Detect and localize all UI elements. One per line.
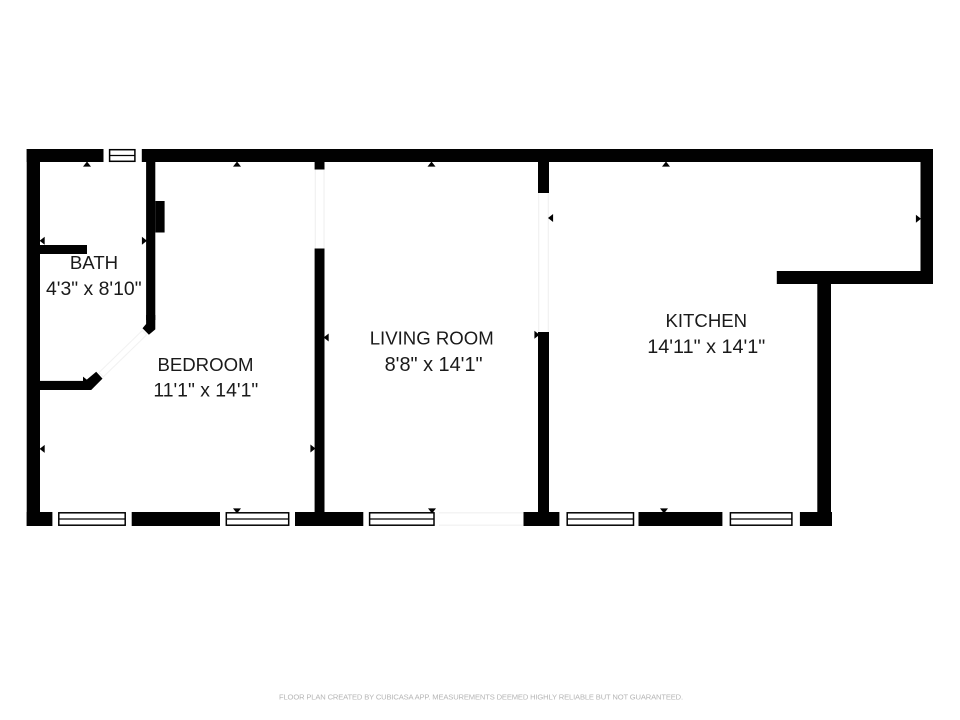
svg-text:11'1" x 14'1": 11'1" x 14'1" [153, 380, 258, 402]
svg-text:BEDROOM: BEDROOM [157, 354, 253, 375]
svg-text:8'8" x 14'1": 8'8" x 14'1" [385, 354, 483, 376]
svg-text:4'3" x 8'10": 4'3" x 8'10" [46, 278, 142, 300]
svg-text:BATH: BATH [70, 252, 118, 273]
svg-text:LIVING ROOM: LIVING ROOM [370, 327, 494, 348]
svg-text:14'11" x 14'1": 14'11" x 14'1" [647, 336, 765, 358]
svg-text:KITCHEN: KITCHEN [665, 310, 747, 331]
svg-text:FLOOR PLAN CREATED BY CUBICASA: FLOOR PLAN CREATED BY CUBICASA APP. MEAS… [279, 692, 683, 701]
